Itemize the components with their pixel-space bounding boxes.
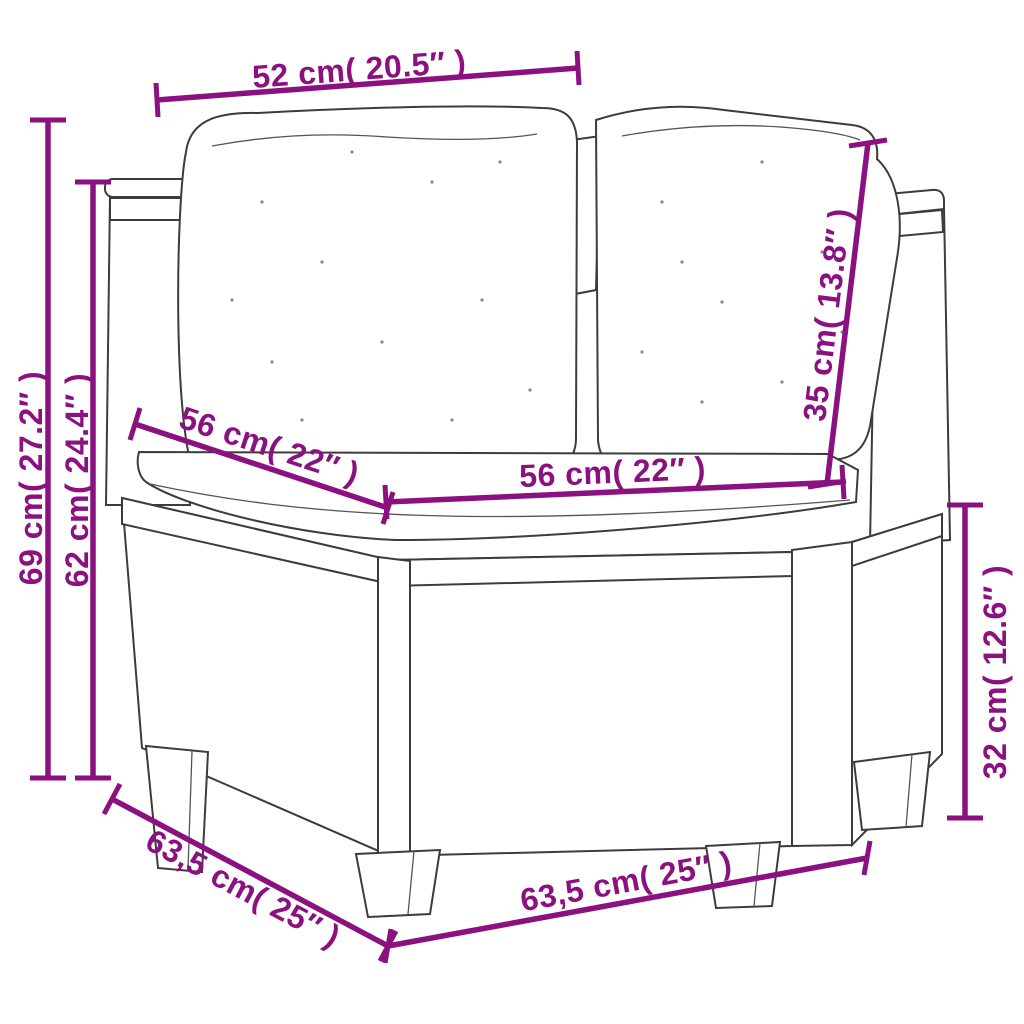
dimension-base-height: 32 cm( 12.6″ ) bbox=[947, 505, 1013, 818]
total-height-label: 69 cm( 27.2″ ) bbox=[13, 371, 49, 585]
dimension-total-width: 63,5 cm( 25″ ) bbox=[385, 841, 870, 963]
armrest-height-label: 62 cm( 24.4″ ) bbox=[59, 373, 95, 587]
total-depth-label: 63,5 cm( 25″ ) bbox=[140, 822, 346, 954]
dimension-diagram: 52 cm( 20.5″ ) 69 cm( 27.2″ ) 62 cm( 24.… bbox=[0, 0, 1024, 1024]
leg-back-right bbox=[854, 752, 930, 830]
dimension-armrest-height: 62 cm( 24.4″ ) bbox=[59, 182, 111, 778]
base-height-label: 32 cm( 12.6″ ) bbox=[977, 565, 1013, 779]
total-width-label: 63,5 cm( 25″ ) bbox=[517, 844, 734, 918]
sofa-diagram-canvas: 52 cm( 20.5″ ) 69 cm( 27.2″ ) 62 cm( 24.… bbox=[0, 0, 1024, 1024]
leg-front-corner bbox=[356, 850, 440, 917]
rattan-base bbox=[122, 498, 942, 858]
back-cushion-right bbox=[596, 107, 900, 471]
